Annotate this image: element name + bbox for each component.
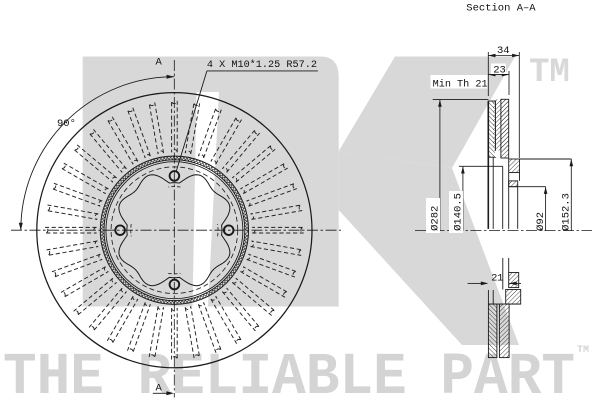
svg-text:23: 23 [493,65,506,77]
svg-text:21: 21 [491,274,503,285]
svg-text:Min Th 21: Min Th 21 [433,79,488,91]
svg-text:TM: TM [529,54,570,92]
svg-text:Ø152.3: Ø152.3 [561,193,573,231]
svg-text:A: A [156,382,163,394]
svg-text:90°: 90° [57,118,76,130]
svg-text:TM: TM [577,345,589,356]
svg-text:Ø282: Ø282 [429,206,441,231]
svg-text:4 X M10*1.25 R57.2: 4 X M10*1.25 R57.2 [207,59,317,71]
svg-text:Ø92: Ø92 [535,212,547,231]
svg-text:A: A [156,57,163,69]
svg-text:Section A–A: Section A–A [466,3,536,15]
svg-text:34: 34 [497,45,510,57]
svg-text:Ø140.5: Ø140.5 [452,193,464,231]
